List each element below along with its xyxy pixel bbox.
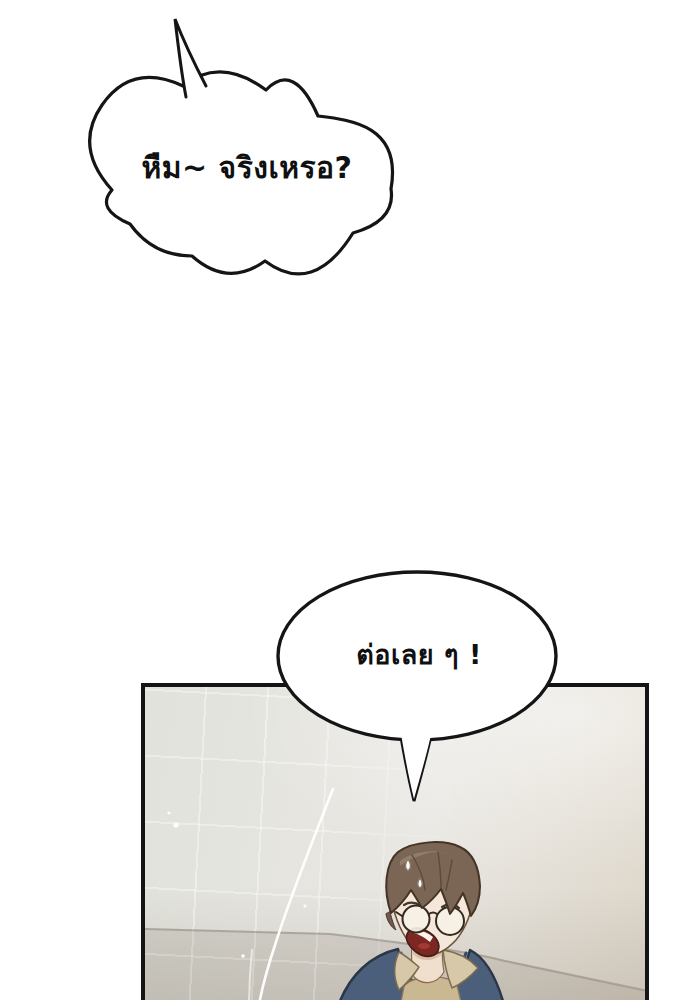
character: [336, 842, 506, 1000]
oval-bubble-text: ต่อเลย ๆ !: [312, 631, 526, 679]
webtoon-page: หืม~ จริงเหรอ? ต่อเลย ๆ !: [0, 0, 700, 1000]
cloud-bubble-tail: [175, 19, 206, 97]
scene-art: [145, 687, 645, 1000]
cloud-bubble-text: หืม~ จริงเหรอ?: [117, 141, 377, 195]
comic-panel: [141, 683, 649, 1000]
